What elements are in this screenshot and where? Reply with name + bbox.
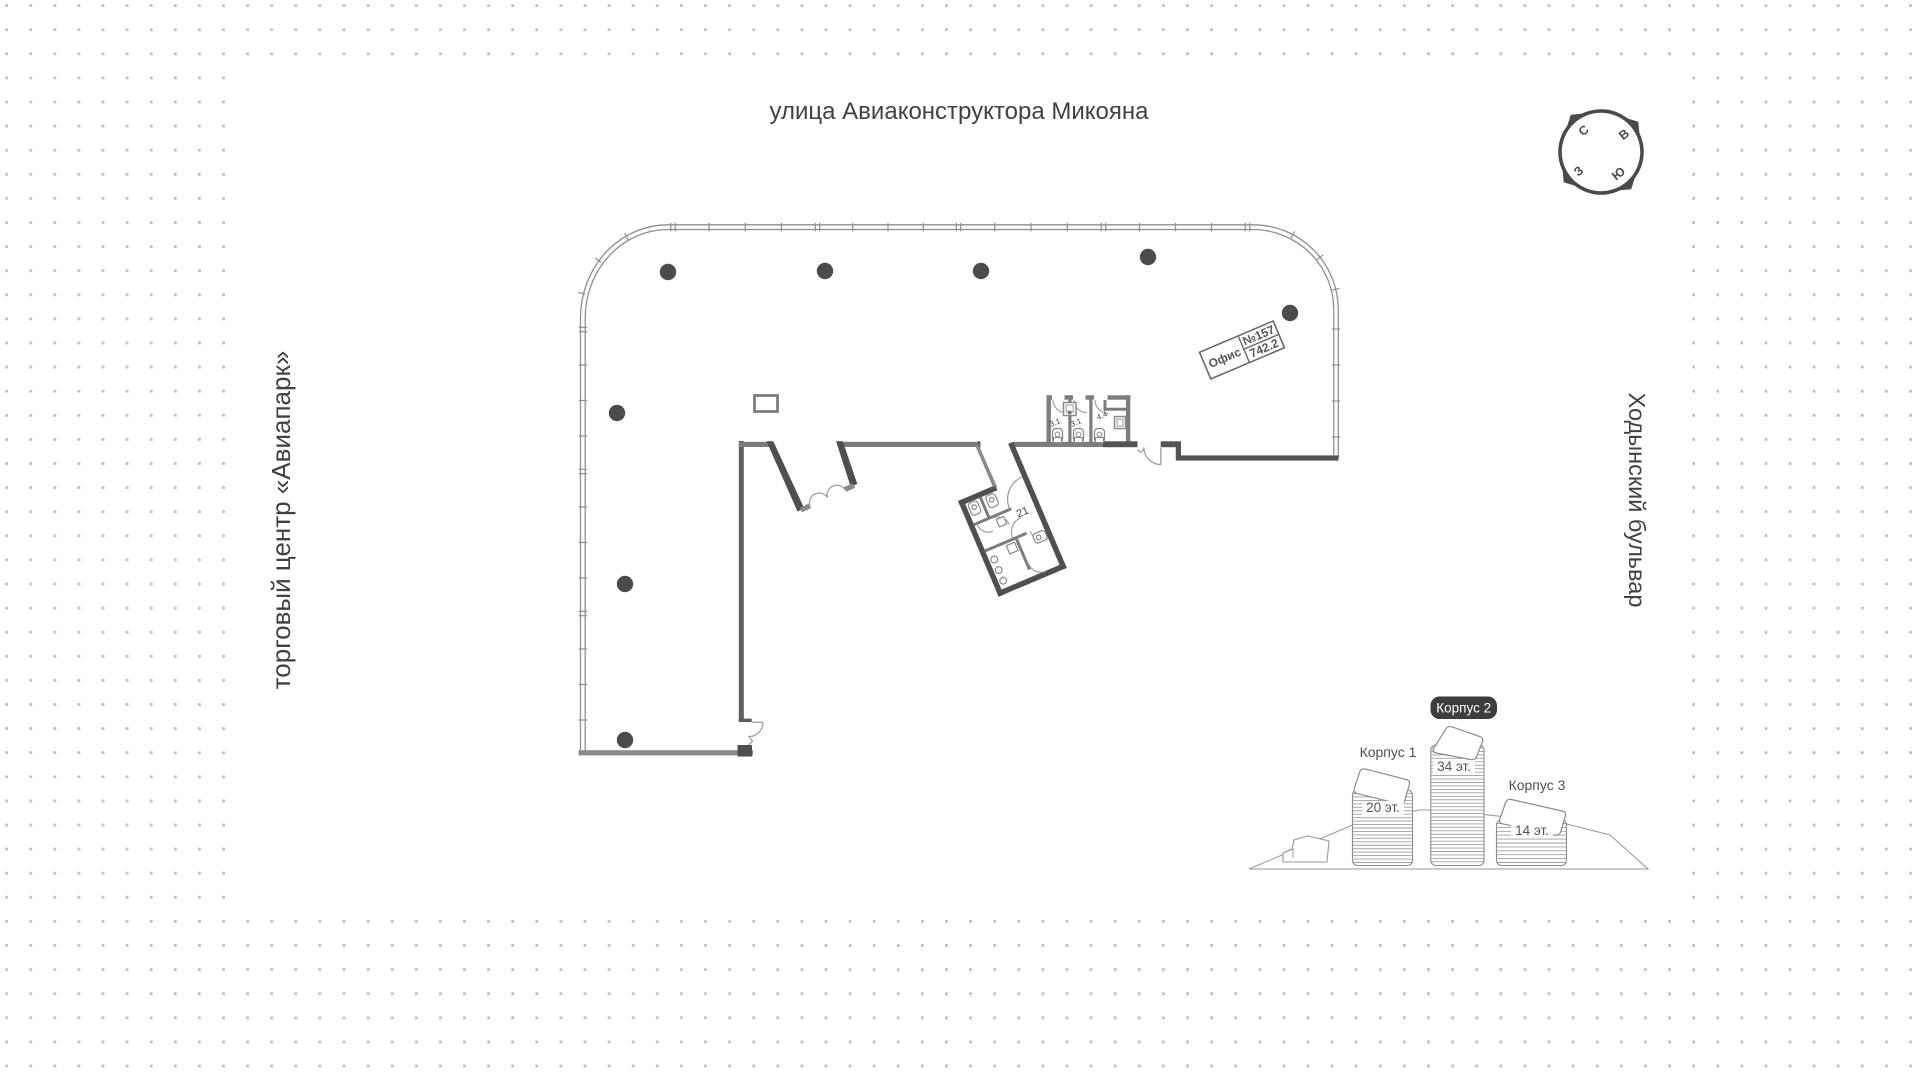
svg-text:Ходынский бульвар: Ходынский бульвар	[1624, 393, 1650, 608]
svg-text:34 эт.: 34 эт.	[1437, 759, 1471, 774]
svg-text:14 эт.: 14 эт.	[1515, 823, 1549, 838]
svg-text:Корпус 2: Корпус 2	[1436, 701, 1491, 716]
svg-text:улица Авиаконструктора Микояна: улица Авиаконструктора Микояна	[770, 98, 1150, 125]
svg-text:Корпус 1: Корпус 1	[1360, 744, 1417, 760]
svg-text:торговый центр «Авиапарк»: торговый центр «Авиапарк»	[266, 351, 296, 690]
svg-text:Корпус 3: Корпус 3	[1509, 777, 1566, 793]
svg-text:20 эт.: 20 эт.	[1366, 800, 1400, 815]
